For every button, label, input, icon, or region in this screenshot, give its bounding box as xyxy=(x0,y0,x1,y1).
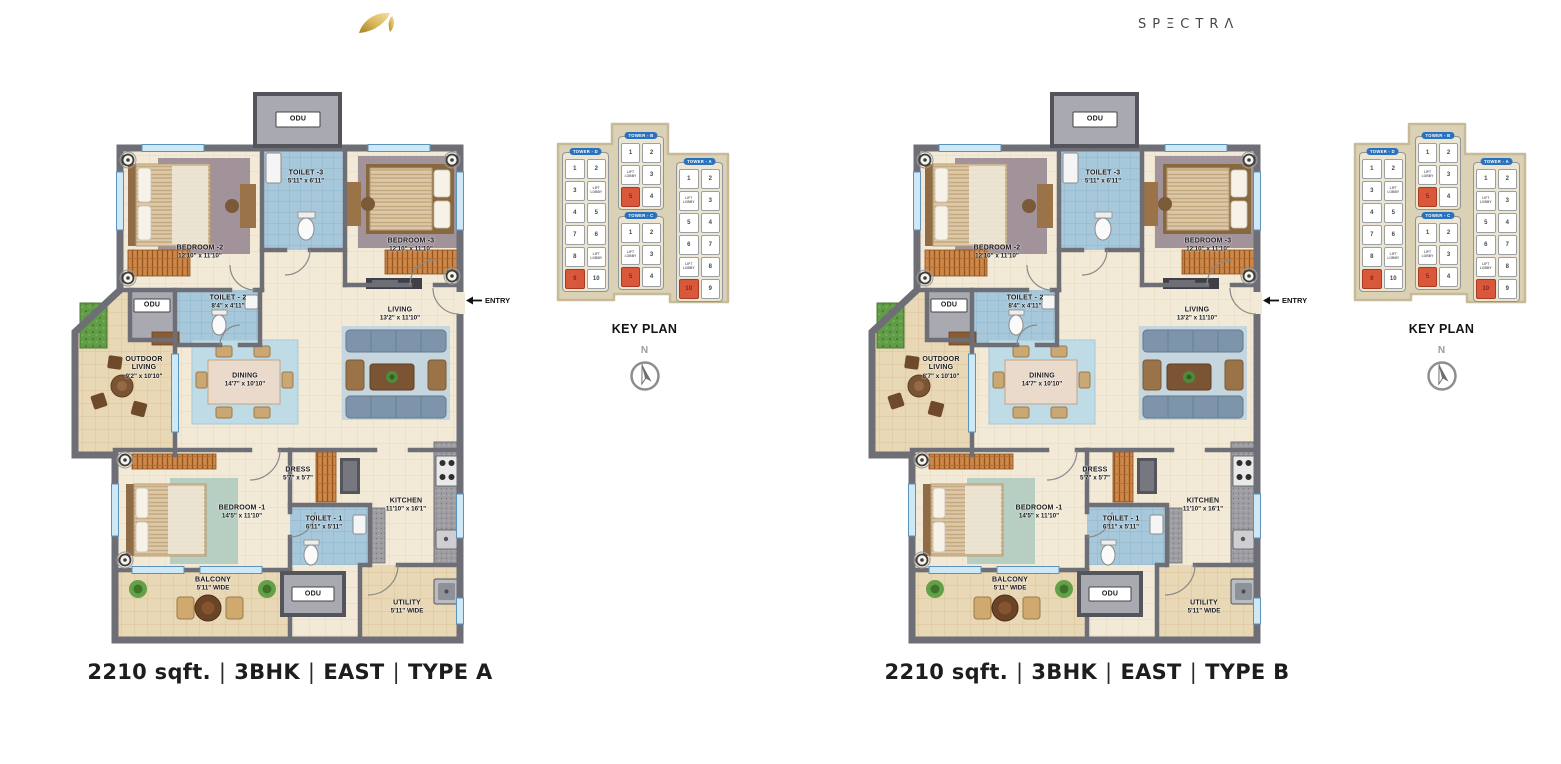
lift-lobby-cell: LIFT LOBBY xyxy=(1418,245,1437,265)
tower-4: TOWER - A12LIFT LOBBY35467LIFT LOBBY8109 xyxy=(676,162,723,302)
unit-cell-2: 2 xyxy=(1439,223,1458,243)
lift-lobby-cell: LIFT LOBBY xyxy=(587,181,607,201)
unit-cell-3: 3 xyxy=(642,165,661,185)
unit-cell-6: 6 xyxy=(679,235,699,255)
unit-cell-3: 3 xyxy=(1439,165,1458,185)
room-label-bedroom-1: BEDROOM -114'5" x 11'10" xyxy=(1016,505,1063,520)
unit-cell-9: 9 xyxy=(701,279,721,299)
tower-2: TOWER - B12LIFT LOBBY354 xyxy=(1415,136,1461,210)
floor-plan-type-b: ODUTOILET -35'11" x 6'11"BEDROOM -212'10… xyxy=(867,92,1307,717)
tower-label: TOWER - C xyxy=(625,212,658,219)
unit-cell-4: 4 xyxy=(1362,203,1382,223)
unit-cell-8: 8 xyxy=(1498,257,1518,277)
room-label-odu-mid: ODU xyxy=(144,302,160,309)
lift-lobby-cell: LIFT LOBBY xyxy=(621,245,640,265)
room-label-dining: DINING14'7" x 10'10" xyxy=(225,373,265,388)
unit-cell-7: 7 xyxy=(701,235,721,255)
entry-label: ENTRY xyxy=(1263,296,1307,305)
unit-cell-8: 8 xyxy=(565,247,585,267)
tower-label: TOWER - C xyxy=(1422,212,1455,219)
unit-cell-2: 2 xyxy=(642,223,661,243)
room-labels: ODUTOILET -35'11" x 6'11"BEDROOM -212'10… xyxy=(70,92,510,652)
room-labels: ODUTOILET -35'11" x 6'11"BEDROOM -212'10… xyxy=(867,92,1307,652)
tower-label: TOWER - D xyxy=(569,148,602,155)
unit-cell-1: 1 xyxy=(1476,169,1496,189)
tower-label: TOWER - D xyxy=(1366,148,1399,155)
room-label-bedroom-2: BEDROOM -212'10" x 11'10" xyxy=(974,245,1021,260)
unit-cell-10: 10 xyxy=(1476,279,1496,299)
room-label-dress: DRESS5'7" x 5'7" xyxy=(283,467,313,482)
unit-cell-10: 10 xyxy=(587,269,607,289)
room-label-utility: UTILITY5'11" WIDE xyxy=(391,600,424,615)
unit-cell-2: 2 xyxy=(587,159,607,179)
brochure-page: SPΞCTRΛ xyxy=(0,0,1561,764)
unit-cell-8: 8 xyxy=(701,257,721,277)
room-label-bedroom-3: BEDROOM -312'10" x 11'10" xyxy=(1185,238,1232,253)
lift-lobby-cell: LIFT LOBBY xyxy=(1476,191,1496,211)
key-plan-title: KEY PLAN xyxy=(1349,322,1534,336)
unit-cell-3: 3 xyxy=(642,245,661,265)
unit-cell-6: 6 xyxy=(1476,235,1496,255)
room-label-outdoor-living: OUTDOOR LIVING8'7" x 10'10" xyxy=(914,356,968,380)
unit-cell-1: 1 xyxy=(621,223,640,243)
unit-cell-1: 1 xyxy=(621,143,640,163)
room-label-kitchen: KITCHEN11'10" x 16'1" xyxy=(1183,498,1223,513)
unit-cell-2: 2 xyxy=(1384,159,1404,179)
caption-separator: | xyxy=(1105,660,1112,684)
caption-separator: | xyxy=(1190,660,1197,684)
tower-3: TOWER - C12LIFT LOBBY354 xyxy=(618,216,664,290)
room-label-balcony: BALCONY5'11" WIDE xyxy=(992,577,1028,592)
caption-part: EAST xyxy=(1120,660,1181,684)
north-label: N xyxy=(552,345,737,356)
room-label-odu-mid: ODU xyxy=(941,302,957,309)
unit-cell-6: 6 xyxy=(587,225,607,245)
unit-cell-3: 3 xyxy=(1439,245,1458,265)
caption-separator: | xyxy=(308,660,315,684)
room-label-toilet-3: TOILET -35'11" x 6'11" xyxy=(288,170,324,185)
lift-lobby-cell: LIFT LOBBY xyxy=(1418,165,1437,185)
tower-4: TOWER - A12LIFT LOBBY35467LIFT LOBBY8109 xyxy=(1473,162,1520,302)
tower-3: TOWER - C12LIFT LOBBY354 xyxy=(1415,216,1461,290)
lift-lobby-cell: LIFT LOBBY xyxy=(587,247,607,267)
unit-cell-1: 1 xyxy=(1418,223,1437,243)
room-label-bedroom-3: BEDROOM -312'10" x 11'10" xyxy=(388,238,435,253)
room-label-kitchen: KITCHEN11'10" x 16'1" xyxy=(386,498,426,513)
room-label-dining: DINING14'7" x 10'10" xyxy=(1022,373,1062,388)
unit-cell-2: 2 xyxy=(642,143,661,163)
key-plan-canvas: TOWER - D123LIFT LOBBY45768LIFT LOBBY910… xyxy=(552,112,737,312)
lift-lobby-cell: LIFT LOBBY xyxy=(621,165,640,185)
unit-cell-7: 7 xyxy=(1362,225,1382,245)
tower-2: TOWER - B12LIFT LOBBY354 xyxy=(618,136,664,210)
room-label-balcony: BALCONY5'11" WIDE xyxy=(195,577,231,592)
caption-part: 2210 sqft. xyxy=(885,660,1008,684)
gold-leaf-logo-icon xyxy=(357,8,399,38)
key-plan-type-b: TOWER - D123LIFT LOBBY45768LIFT LOBBY910… xyxy=(1349,112,1534,404)
caption-part: TYPE B xyxy=(1205,660,1289,684)
tower-label: TOWER - B xyxy=(625,132,658,139)
room-label-odu-top: ODU xyxy=(1087,116,1103,123)
unit-cell-4: 4 xyxy=(1498,213,1518,233)
caption-part: EAST xyxy=(323,660,384,684)
unit-cell-9: 9 xyxy=(1498,279,1518,299)
room-label-odu-bottom: ODU xyxy=(305,591,321,598)
lift-lobby-cell: LIFT LOBBY xyxy=(679,191,699,211)
unit-cell-5: 5 xyxy=(621,267,640,287)
unit-cell-1: 1 xyxy=(1418,143,1437,163)
room-label-living: LIVING13'2" x 11'10" xyxy=(380,307,420,322)
room-label-bedroom-1: BEDROOM -114'5" x 11'10" xyxy=(219,505,266,520)
unit-cell-3: 3 xyxy=(1498,191,1518,211)
lift-lobby-cell: LIFT LOBBY xyxy=(1384,181,1404,201)
tower-label: TOWER - A xyxy=(683,158,716,165)
unit-cell-7: 7 xyxy=(1498,235,1518,255)
lift-lobby-cell: LIFT LOBBY xyxy=(679,257,699,277)
entry-text: ENTRY xyxy=(485,296,510,305)
caption-separator: | xyxy=(219,660,226,684)
north-label: N xyxy=(1349,345,1534,356)
unit-cell-4: 4 xyxy=(1439,267,1458,287)
lift-lobby-cell: LIFT LOBBY xyxy=(1476,257,1496,277)
unit-cell-8: 8 xyxy=(1362,247,1382,267)
entry-label: ENTRY xyxy=(466,296,510,305)
unit-cell-3: 3 xyxy=(1362,181,1382,201)
unit-cell-1: 1 xyxy=(679,169,699,189)
unit-cell-5: 5 xyxy=(587,203,607,223)
unit-cell-1: 1 xyxy=(565,159,585,179)
room-label-outdoor-living: OUTDOOR LIVING9'2" x 10'10" xyxy=(117,356,171,380)
plan-caption: 2210 sqft.|3BHK|EAST|TYPE B xyxy=(867,660,1307,684)
unit-cell-7: 7 xyxy=(565,225,585,245)
unit-cell-2: 2 xyxy=(701,169,721,189)
unit-cell-6: 6 xyxy=(1384,225,1404,245)
unit-cell-3: 3 xyxy=(701,191,721,211)
tower-1: TOWER - D123LIFT LOBBY45768LIFT LOBBY910 xyxy=(562,152,609,292)
room-label-toilet-2: TOILET - 28'4" x 4'11" xyxy=(210,295,247,310)
unit-cell-10: 10 xyxy=(1384,269,1404,289)
room-label-odu-bottom: ODU xyxy=(1102,591,1118,598)
room-label-bedroom-2: BEDROOM -212'10" x 11'10" xyxy=(177,245,224,260)
key-plan-canvas: TOWER - D123LIFT LOBBY45768LIFT LOBBY910… xyxy=(1349,112,1534,312)
key-plan-title: KEY PLAN xyxy=(552,322,737,336)
unit-cell-4: 4 xyxy=(642,267,661,287)
unit-cell-5: 5 xyxy=(1418,267,1437,287)
entry-text: ENTRY xyxy=(1282,296,1307,305)
room-label-dress: DRESS5'7" x 5'7" xyxy=(1080,467,1110,482)
lift-lobby-cell: LIFT LOBBY xyxy=(1384,247,1404,267)
unit-cell-3: 3 xyxy=(565,181,585,201)
unit-cell-4: 4 xyxy=(642,187,661,207)
room-label-utility: UTILITY5'11" WIDE xyxy=(1188,600,1221,615)
unit-cell-4: 4 xyxy=(565,203,585,223)
unit-cell-4: 4 xyxy=(701,213,721,233)
brand-wordmark: SPΞCTRΛ xyxy=(1138,17,1239,32)
caption-part: 2210 sqft. xyxy=(87,660,210,684)
unit-cell-2: 2 xyxy=(1498,169,1518,189)
room-label-toilet-1: TOILET - 16'11" x 5'11" xyxy=(1103,516,1140,531)
room-label-toilet-1: TOILET - 16'11" x 5'11" xyxy=(306,516,343,531)
unit-cell-10: 10 xyxy=(679,279,699,299)
caption-part: TYPE A xyxy=(408,660,493,684)
room-label-living: LIVING13'2" x 11'10" xyxy=(1177,307,1217,322)
room-label-toilet-3: TOILET -35'11" x 6'11" xyxy=(1085,170,1121,185)
compass-icon xyxy=(627,358,663,394)
unit-cell-5: 5 xyxy=(1418,187,1437,207)
caption-separator: | xyxy=(1016,660,1023,684)
tower-1: TOWER - D123LIFT LOBBY45768LIFT LOBBY910 xyxy=(1359,152,1406,292)
unit-cell-5: 5 xyxy=(679,213,699,233)
unit-cell-9: 9 xyxy=(565,269,585,289)
tower-label: TOWER - B xyxy=(1422,132,1455,139)
entry-arrow-icon xyxy=(1263,296,1279,305)
unit-cell-4: 4 xyxy=(1439,187,1458,207)
caption-part: 3BHK xyxy=(234,660,300,684)
unit-cell-5: 5 xyxy=(1384,203,1404,223)
plan-caption: 2210 sqft.|3BHK|EAST|TYPE A xyxy=(70,660,510,684)
tower-label: TOWER - A xyxy=(1480,158,1513,165)
unit-cell-1: 1 xyxy=(1362,159,1382,179)
room-label-toilet-2: TOILET - 28'4" x 4'11" xyxy=(1007,295,1044,310)
caption-separator: | xyxy=(393,660,400,684)
entry-arrow-icon xyxy=(466,296,482,305)
caption-part: 3BHK xyxy=(1031,660,1097,684)
compass-icon xyxy=(1424,358,1460,394)
unit-cell-9: 9 xyxy=(1362,269,1382,289)
key-plan-type-a: TOWER - D123LIFT LOBBY45768LIFT LOBBY910… xyxy=(552,112,737,404)
unit-cell-5: 5 xyxy=(621,187,640,207)
floor-plan-type-a: ODUTOILET -35'11" x 6'11"BEDROOM -212'10… xyxy=(70,92,510,717)
unit-cell-5: 5 xyxy=(1476,213,1496,233)
unit-cell-2: 2 xyxy=(1439,143,1458,163)
room-label-odu-top: ODU xyxy=(290,116,306,123)
